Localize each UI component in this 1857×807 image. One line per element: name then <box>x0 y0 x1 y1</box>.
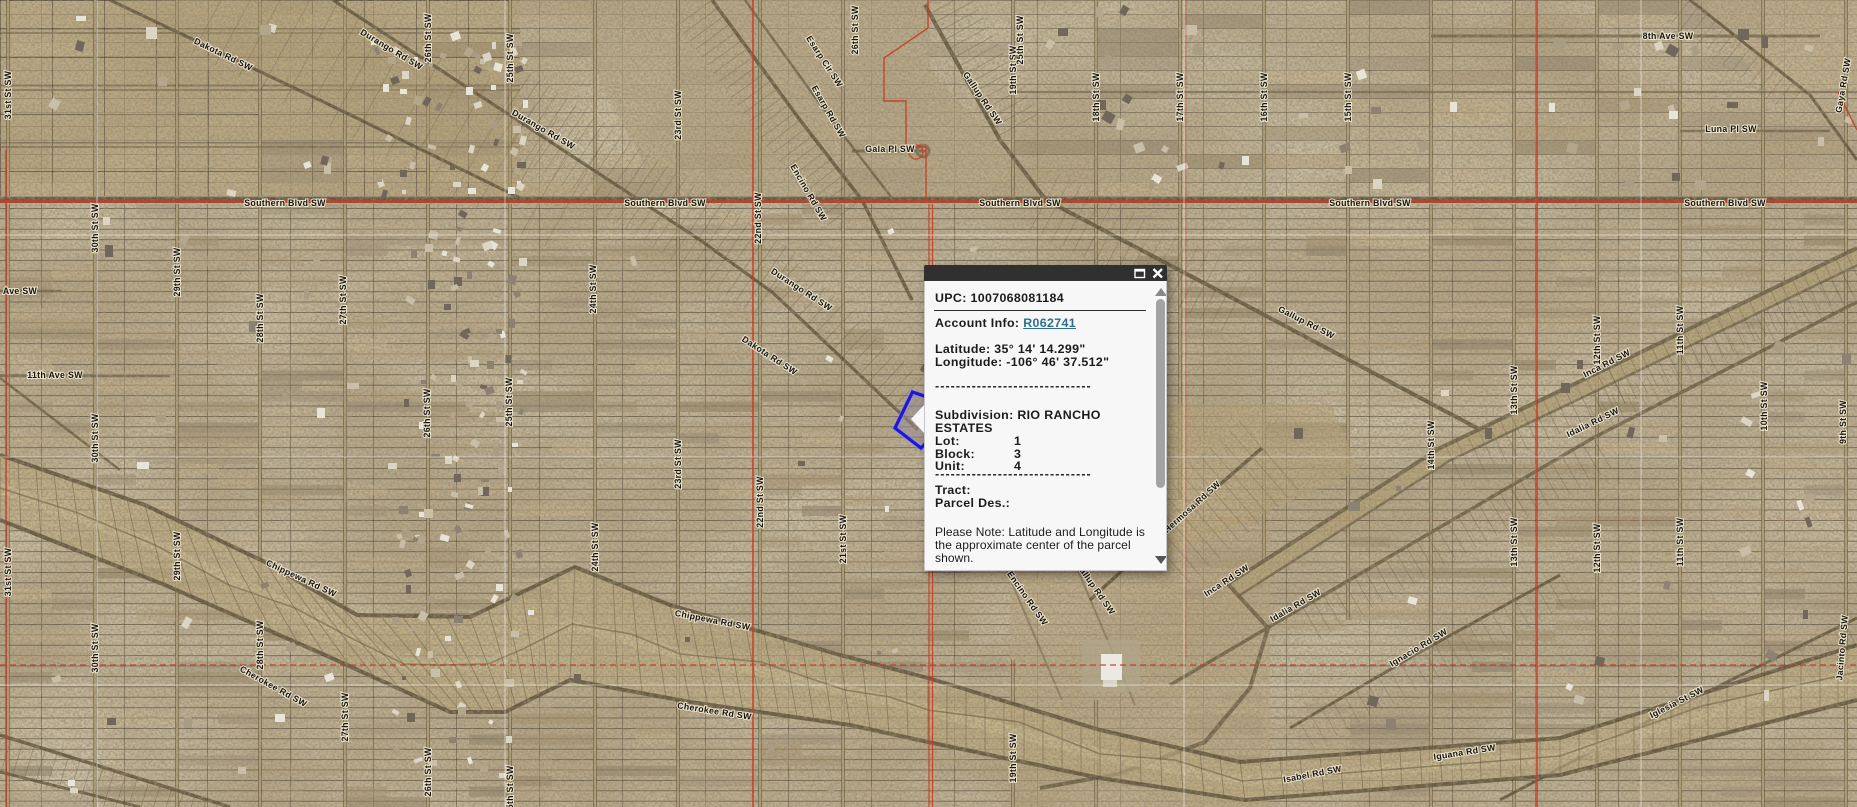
svg-text:11th St SW: 11th St SW <box>1675 517 1685 566</box>
svg-text:24th St SW: 24th St SW <box>590 522 600 571</box>
svg-text:13th St SW: 13th St SW <box>1509 365 1519 414</box>
svg-text:31st St SW: 31st St SW <box>3 70 13 119</box>
svg-text:25th St SW: 25th St SW <box>504 377 514 426</box>
svg-text:13th St SW: 13th St SW <box>1509 517 1519 566</box>
svg-text:25th St SW: 25th St SW <box>505 33 515 82</box>
svg-text:Southern Blvd SW: Southern Blvd SW <box>624 198 706 208</box>
svg-text:14th St SW: 14th St SW <box>1426 420 1436 469</box>
svg-text:12th St SW: 12th St SW <box>1592 523 1602 572</box>
svg-text:12th St SW: 12th St SW <box>1592 315 1602 364</box>
svg-text:Southern Blvd SW: Southern Blvd SW <box>1329 198 1411 208</box>
svg-text:28th St SW: 28th St SW <box>255 620 265 669</box>
svg-text:18th St SW: 18th St SW <box>1091 72 1101 121</box>
svg-text:26th St SW: 26th St SW <box>423 747 433 796</box>
svg-text:11th Ave SW: 11th Ave SW <box>27 370 83 380</box>
svg-text:11th St SW: 11th St SW <box>1675 305 1685 354</box>
svg-text:19th St SW: 19th St SW <box>1008 733 1018 782</box>
svg-text:8th Ave SW: 8th Ave SW <box>1643 31 1694 41</box>
svg-text:10th St SW: 10th St SW <box>1759 381 1769 430</box>
svg-text:9th St SW: 9th St SW <box>1838 400 1848 444</box>
svg-text:24th St SW: 24th St SW <box>588 264 598 313</box>
svg-text:15th St SW: 15th St SW <box>1343 72 1353 121</box>
svg-text:16th St SW: 16th St SW <box>1259 72 1269 121</box>
svg-text:25th St SW: 25th St SW <box>1015 15 1025 64</box>
svg-text:Gala Pl SW: Gala Pl SW <box>865 144 915 154</box>
svg-text:Ave SW: Ave SW <box>3 286 38 296</box>
svg-text:23rd St SW: 23rd St SW <box>673 439 683 489</box>
svg-text:29th St SW: 29th St SW <box>172 531 182 580</box>
svg-text:27th St SW: 27th St SW <box>340 692 350 741</box>
svg-text:Southern Blvd SW: Southern Blvd SW <box>979 198 1061 208</box>
svg-text:22nd St SW: 22nd St SW <box>753 192 763 244</box>
svg-text:26th St SW: 26th St SW <box>423 13 433 62</box>
svg-text:26th St SW: 26th St SW <box>422 388 432 437</box>
svg-text:30th St SW: 30th St SW <box>90 413 100 462</box>
svg-text:31st St SW: 31st St SW <box>3 547 13 596</box>
svg-text:Southern Blvd SW: Southern Blvd SW <box>244 198 326 208</box>
svg-text:Southern Blvd SW: Southern Blvd SW <box>1684 198 1766 208</box>
svg-text:29th St SW: 29th St SW <box>172 247 182 296</box>
svg-text:23rd St SW: 23rd St SW <box>673 90 683 140</box>
svg-text:25th St SW: 25th St SW <box>505 765 515 807</box>
svg-text:21st St SW: 21st St SW <box>838 514 848 563</box>
svg-text:28th St SW: 28th St SW <box>255 293 265 342</box>
svg-text:30th St SW: 30th St SW <box>90 203 100 252</box>
svg-text:30th St SW: 30th St SW <box>90 623 100 672</box>
svg-text:Luna Pl SW: Luna Pl SW <box>1705 124 1757 134</box>
svg-text:17th St SW: 17th St SW <box>1175 72 1185 121</box>
svg-text:27th St SW: 27th St SW <box>338 275 348 324</box>
svg-text:26th St SW: 26th St SW <box>850 5 860 54</box>
svg-text:22nd St SW: 22nd St SW <box>755 476 765 528</box>
